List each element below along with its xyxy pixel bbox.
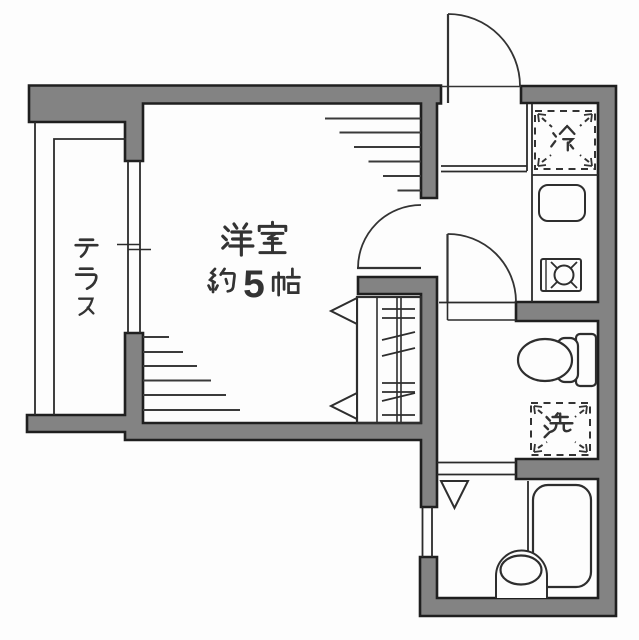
svg-text:5: 5 [243, 263, 265, 306]
